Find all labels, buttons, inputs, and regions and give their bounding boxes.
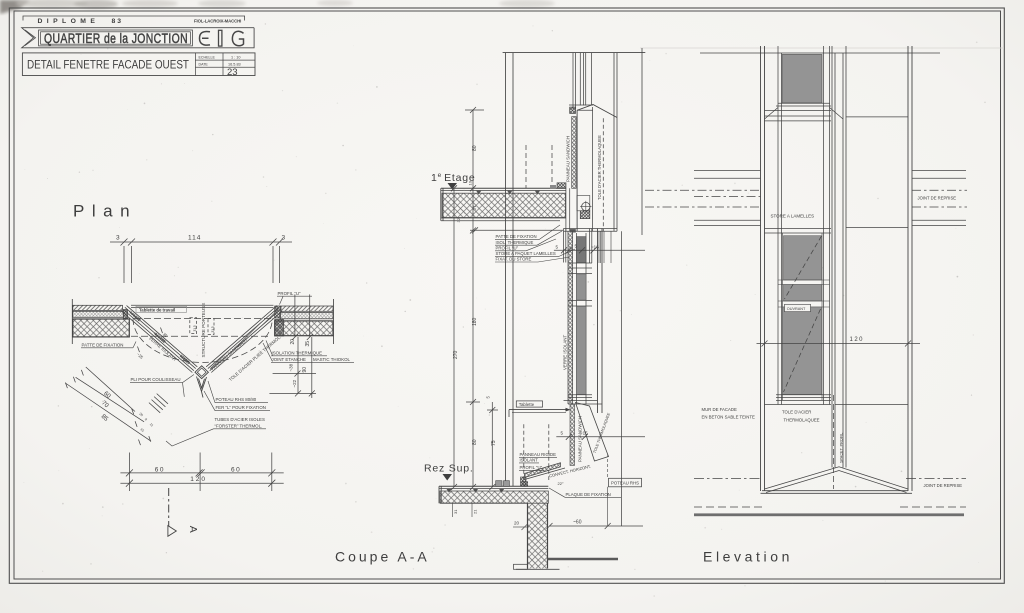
svg-text:DATE: DATE <box>199 63 209 67</box>
svg-text:21: 21 <box>472 509 477 514</box>
svg-text:27: 27 <box>472 205 477 210</box>
svg-text:PANNEAU RIGIDE: PANNEAU RIGIDE <box>520 452 557 457</box>
svg-text:FIOL-LACROIX-MACCHI: FIOL-LACROIX-MACCHI <box>194 18 241 23</box>
svg-text:31.5: 31.5 <box>211 326 215 332</box>
svg-text:120: 120 <box>190 476 207 483</box>
svg-text:120: 120 <box>850 337 865 343</box>
svg-text:ISOLANT: ISOLANT <box>520 458 539 463</box>
svg-text:OUVRANT: OUVRANT <box>787 307 806 311</box>
svg-text:FIXAT. DU STORE: FIXAT. DU STORE <box>496 257 532 262</box>
svg-text:60: 60 <box>231 467 241 474</box>
svg-text:MASTIC THIOKOL: MASTIC THIOKOL <box>313 357 351 362</box>
svg-text:23: 23 <box>227 67 238 78</box>
svg-text:1 : 10: 1 : 10 <box>231 55 241 59</box>
svg-text:VERRE ISOLANT: VERRE ISOLANT <box>562 335 567 370</box>
svg-text:83: 83 <box>112 18 124 25</box>
svg-text:22°: 22° <box>558 481 564 486</box>
svg-text:Tablette de travail: Tablette de travail <box>139 307 175 312</box>
svg-text:TUBES D'ACIER ISOLES: TUBES D'ACIER ISOLES <box>215 417 265 422</box>
svg-text:THERMOLAQUEE: THERMOLAQUEE <box>784 417 820 422</box>
svg-text:32: 32 <box>456 217 461 222</box>
svg-text:31: 31 <box>453 509 458 514</box>
svg-text:TOLE D'ACIER: TOLE D'ACIER <box>782 410 811 415</box>
svg-text:SPACET. PROFIL: SPACET. PROFIL <box>840 433 844 463</box>
svg-text:114: 114 <box>188 235 201 242</box>
svg-text:75: 75 <box>491 440 497 446</box>
svg-text:~16: ~16 <box>591 245 599 250</box>
svg-text:JOINT DE REPRISE: JOINT DE REPRISE <box>918 196 957 201</box>
svg-text:“FORSTER” THERMOL.: “FORSTER” THERMOL. <box>215 423 263 428</box>
svg-text:A: A <box>187 526 199 533</box>
svg-text:DIPLOME: DIPLOME <box>38 18 100 25</box>
svg-text:Plan: Plan <box>73 202 137 221</box>
svg-text:PROFIL “U”: PROFIL “U” <box>520 465 543 470</box>
svg-text:JOINT ETANCHE: JOINT ETANCHE <box>272 357 307 362</box>
svg-text:PLAQUE DE FIXATION: PLAQUE DE FIXATION <box>566 492 611 497</box>
svg-text:Elevation: Elevation <box>703 549 793 565</box>
svg-text:~15: ~15 <box>580 430 588 435</box>
svg-text:31.5: 31.5 <box>193 325 197 331</box>
svg-text:JOINT DE REPRISE: JOINT DE REPRISE <box>924 483 963 488</box>
svg-text:QUARTIER de la JONCTION: QUARTIER de la JONCTION <box>44 31 188 46</box>
svg-text:POTEAU RHS: POTEAU RHS <box>611 481 639 486</box>
svg-text:Coupe A-A: Coupe A-A <box>335 549 430 565</box>
svg-text:80: 80 <box>472 145 478 151</box>
svg-text:20: 20 <box>290 339 296 345</box>
svg-text:FER “L” POUR FIXATION: FER “L” POUR FIXATION <box>216 405 266 410</box>
svg-text:ISOLATION THERMIQUE: ISOLATION THERMIQUE <box>272 350 323 355</box>
svg-text:270: 270 <box>453 350 459 359</box>
svg-text:PROFIL “U”: PROFIL “U” <box>496 245 519 250</box>
svg-text:~38: ~38 <box>289 363 294 371</box>
svg-text:~22: ~22 <box>292 379 297 387</box>
svg-text:60: 60 <box>155 467 165 474</box>
svg-text:~60: ~60 <box>573 520 582 526</box>
svg-text:PATTE DE FIXATION: PATTE DE FIXATION <box>496 234 537 239</box>
svg-text:EN BETON SABLE TEINTE: EN BETON SABLE TEINTE <box>702 415 755 420</box>
svg-text:PROFIL “U”: PROFIL “U” <box>278 291 302 296</box>
svg-text:POTEAU RHS 80/80: POTEAU RHS 80/80 <box>216 397 257 402</box>
svg-text:TOLE D'ACIER THERMOLAQUEE: TOLE D'ACIER THERMOLAQUEE <box>597 135 602 200</box>
svg-text:DETAIL FENETRE FACADE OUEST: DETAIL FENETRE FACADE OUEST <box>27 59 189 71</box>
svg-text:STRUCTURE PORTEUSE: STRUCTURE PORTEUSE <box>201 303 206 358</box>
svg-text:Tablette: Tablette <box>519 402 535 407</box>
svg-text:35: 35 <box>305 341 311 347</box>
svg-text:180: 180 <box>472 317 478 326</box>
svg-text:90: 90 <box>302 367 308 373</box>
svg-text:ISOL. THERMIQUE: ISOL. THERMIQUE <box>496 240 534 245</box>
svg-text:PLI POUR COULISSEAU: PLI POUR COULISSEAU <box>131 377 181 382</box>
svg-text:MUR DE FACADE: MUR DE FACADE <box>702 407 737 412</box>
svg-text:ECHELLE: ECHELLE <box>199 55 216 59</box>
svg-text:Rez Sup.: Rez Sup. <box>424 463 474 475</box>
svg-text:PATTE DE FIXATION: PATTE DE FIXATION <box>82 342 124 347</box>
svg-text:STORE A LAMELLES: STORE A LAMELLES <box>771 214 815 219</box>
svg-text:STORE A PAQUET LAMELLES: STORE A PAQUET LAMELLES <box>496 251 556 256</box>
svg-text:10: 10 <box>468 180 473 185</box>
svg-text:PANNEAU SANDWICH: PANNEAU SANDWICH <box>566 136 571 182</box>
svg-text:80: 80 <box>472 439 478 445</box>
svg-text:3: 3 <box>116 235 120 242</box>
svg-text:20: 20 <box>514 521 520 526</box>
svg-text:3: 3 <box>282 235 286 242</box>
